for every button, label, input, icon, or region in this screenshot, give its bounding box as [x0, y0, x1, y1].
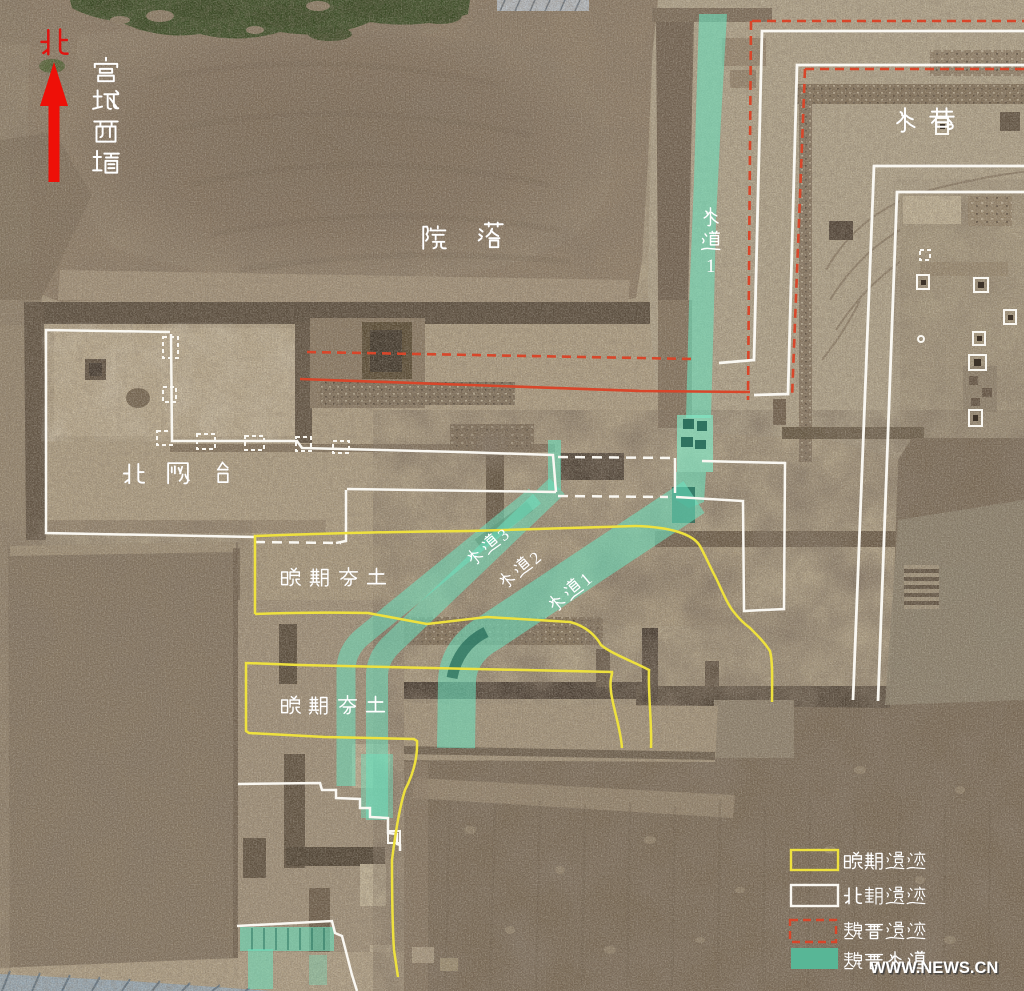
svg-text:WWW.NEWS.CN: WWW.NEWS.CN: [870, 959, 998, 977]
svg-text:1: 1: [706, 256, 716, 277]
